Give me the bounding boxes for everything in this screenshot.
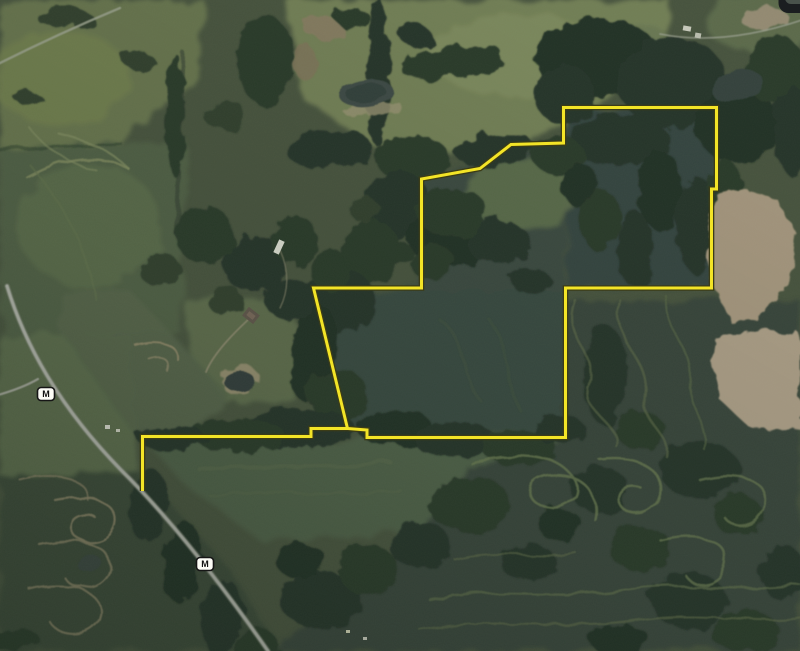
map-canvas: MM xyxy=(0,0,800,651)
photo-grain xyxy=(0,0,800,651)
route-shield-label: M xyxy=(201,559,209,569)
route-shield-label: M xyxy=(42,389,50,399)
aerial-map-view[interactable]: MM xyxy=(0,0,800,651)
route-marker-shield: M xyxy=(197,558,214,571)
route-marker-shield: M xyxy=(38,388,55,401)
